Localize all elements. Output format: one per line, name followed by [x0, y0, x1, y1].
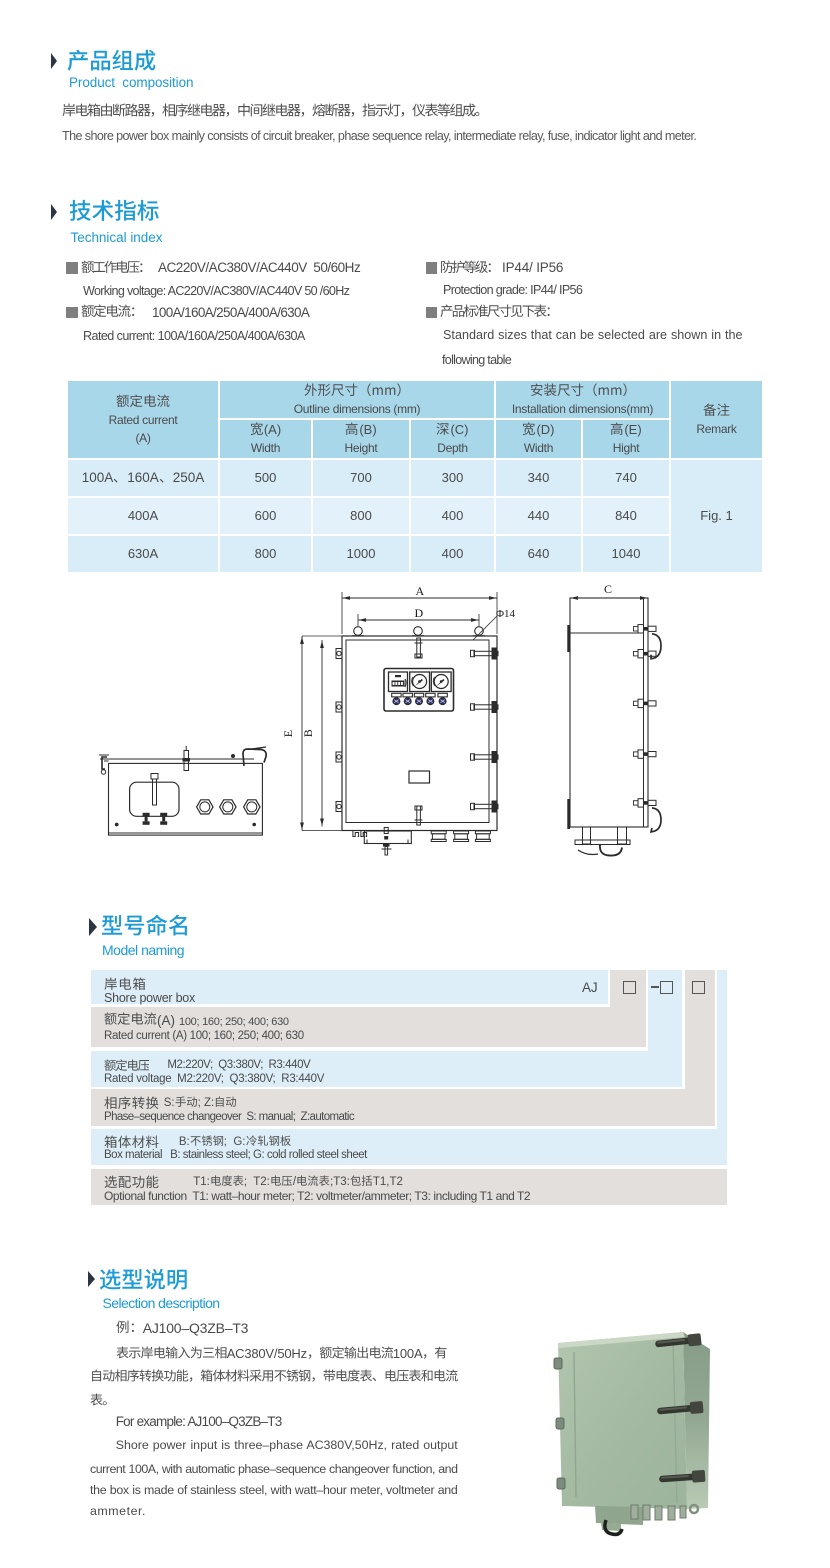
svg-text:Φ14: Φ14: [496, 608, 516, 620]
svg-text:A: A: [416, 584, 425, 598]
svg-text:D: D: [415, 606, 424, 620]
svg-text:E: E: [281, 730, 295, 737]
svg-text:B: B: [301, 729, 315, 737]
svg-text:C: C: [604, 582, 612, 596]
